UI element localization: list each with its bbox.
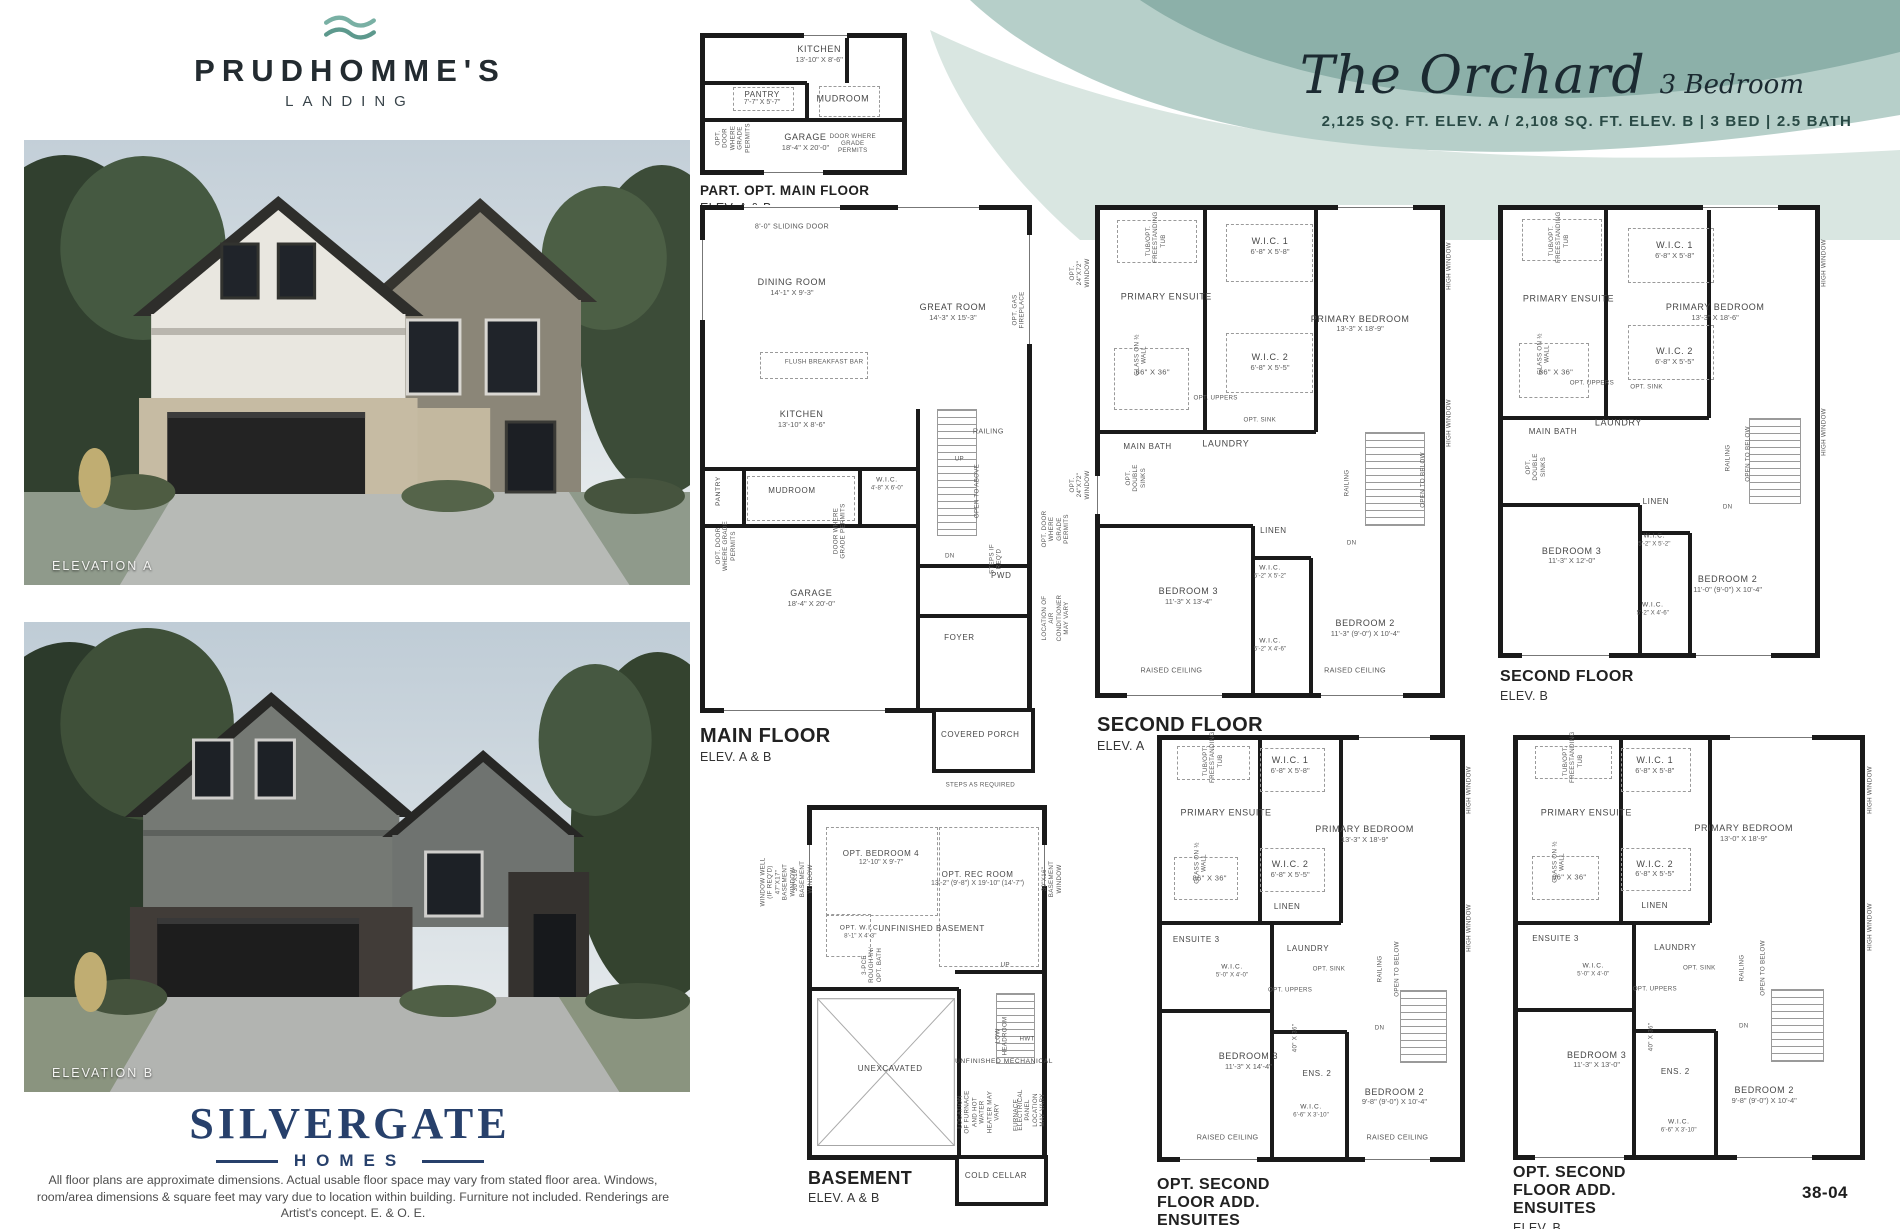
- plan-title: OPT. SECOND FLOOR ADD. ENSUITES: [1157, 1176, 1327, 1229]
- window-marker: [1737, 1155, 1812, 1160]
- plan-annotation: OPT. UPPERS: [1268, 986, 1312, 993]
- room-name: BEDROOM 3: [1159, 586, 1218, 597]
- plan-annotation: OPEN TO BELOW: [1744, 426, 1751, 482]
- room-dimensions: 5'-2" X 4'-6": [1637, 609, 1669, 616]
- room-label: GARAGE18'-4" X 20'-0": [782, 132, 829, 152]
- plan-annotation: UP: [1001, 962, 1010, 969]
- room-name: W.I.C. 2: [1271, 859, 1310, 870]
- plan-annotation: HIGH WINDOW: [1867, 903, 1874, 951]
- room-label: BEDROOM 311'-3" X 14'-4": [1219, 1051, 1278, 1071]
- room-dimensions: 18'-4" X 20'-0": [788, 599, 835, 608]
- interior-wall: [1518, 921, 1710, 925]
- interior-wall: [1253, 556, 1311, 560]
- plan-caption: BASEMENT ELEV. A & B: [808, 1168, 912, 1205]
- room-name: LAUNDRY: [1654, 943, 1696, 953]
- room-dimensions: 6'-8" X 5'-8": [1271, 766, 1310, 775]
- window-marker: [1703, 205, 1778, 210]
- room-dimensions: 13'-10" X 8'-6": [778, 420, 825, 429]
- plan-specs: 2,125 SQ. FT. ELEV. A / 2,108 SQ. FT. EL…: [1322, 113, 1852, 130]
- plan-annotation: OPT. SINK: [1683, 965, 1716, 972]
- room-name: UNFINISHED BASEMENT: [878, 924, 985, 934]
- interior-wall: [1270, 923, 1274, 1157]
- room-name: PRIMARY ENSUITE: [1180, 808, 1271, 819]
- plan-annotation: 86" X 36": [1136, 367, 1170, 376]
- room-label: PANTRY: [716, 476, 724, 506]
- room-dimensions: 11'-0" (9'-0") X 10'-4": [1693, 585, 1762, 594]
- room-name: LINEN: [1274, 902, 1301, 912]
- room-label: MAIN BATH: [1123, 442, 1171, 452]
- window-marker: [1522, 653, 1609, 658]
- room-dimensions: 18'-4" X 20'-0": [782, 143, 829, 152]
- interior-wall: [1518, 1008, 1634, 1012]
- plan-annotation: RAILING: [1738, 955, 1745, 982]
- room-dimensions: 11'-3" (9'-0") X 10'-4": [1331, 629, 1400, 638]
- room-label: W.I.C.4'-8" X 6'-0": [871, 476, 903, 491]
- room-name: ENSUITE 3: [1532, 934, 1579, 944]
- interior-wall: [955, 970, 1042, 974]
- interior-wall: [916, 409, 920, 708]
- plan-caption: MAIN FLOOR ELEV. A & B: [700, 725, 831, 764]
- room-name: LINEN: [1260, 526, 1287, 536]
- plan-annotation: OPT. SINK: [1313, 966, 1346, 973]
- room-label: W.I.C. 26'-8" X 5'-5": [1250, 352, 1289, 372]
- room-label: BEDROOM 311'-3" X 13'-4": [1159, 586, 1218, 606]
- window-marker: [1127, 693, 1222, 698]
- room-dimensions: 6'-6" X 3'-10": [1661, 1126, 1697, 1133]
- plan-annotation: OPEN TO ABOVE: [973, 464, 980, 518]
- room-name: MUDROOM: [817, 93, 870, 104]
- room-dimensions: 13'-3" X 18'-9": [1311, 324, 1410, 333]
- room-name: W.I.C.: [871, 476, 903, 484]
- room-dimensions: 11'-3" X 14'-4": [1219, 1062, 1278, 1071]
- plan-annotation: STEPS AS REQUIRED: [940, 781, 1020, 788]
- community-subtitle: LANDING: [95, 93, 605, 110]
- room-dimensions: 14'-3" X 15'-3": [920, 313, 987, 322]
- plan-annotation: LOCATION OF FURNACE AND HOT WATER HEATER…: [956, 1090, 1001, 1134]
- interior-wall: [705, 81, 807, 85]
- room-dimensions: 5'-2" X 4'-6": [1254, 645, 1286, 652]
- plan-annotation: RAISED CEILING: [1141, 667, 1203, 676]
- interior-wall: [858, 469, 862, 526]
- plan-title: SECOND FLOOR: [1097, 714, 1263, 736]
- room-label: LINEN: [1274, 902, 1301, 912]
- room-name: PRIMARY ENSUITE: [1541, 807, 1632, 818]
- room-dimensions: 12'-10" X 9'-7": [843, 859, 919, 867]
- plan-annotation: HIGH WINDOW: [1821, 239, 1828, 287]
- plan-annotation: ELECTRICAL PANEL LOCATION MAY VARY: [1017, 1088, 1047, 1132]
- plan-annotation: RAISED CEILING: [1197, 1134, 1259, 1143]
- room-name: COVERED PORCH: [941, 731, 1019, 741]
- plan-annotation: DOOR WHERE GRADE PERMITS: [827, 132, 879, 154]
- plan-annotation: RAISED CEILING: [1367, 1134, 1429, 1143]
- room-label: LAUNDRY: [1654, 943, 1696, 953]
- room-name: BEDROOM 3: [1219, 1051, 1278, 1062]
- room-label: ENS. 2: [1661, 1067, 1690, 1077]
- room-name: OPT. REC ROOM: [931, 870, 1024, 880]
- interior-wall: [1162, 921, 1341, 925]
- room-dimensions: 8'-1" X 4'-3": [840, 933, 881, 940]
- plan-subtitle: ELEV. A & B: [808, 1191, 912, 1205]
- plan-annotation: DN: [1739, 1023, 1749, 1030]
- plan-annotation: OPT. UPPERS: [1193, 395, 1237, 402]
- plan-subtitle: ELEV. A & B: [700, 750, 831, 764]
- plan-title: BASEMENT: [808, 1168, 912, 1188]
- room-dimensions: 13'-3" X 18'-6": [1666, 313, 1765, 322]
- room-label: LINEN: [1260, 526, 1287, 536]
- room-dimensions: 11'-3" X 13'-0": [1567, 1060, 1626, 1069]
- room-label: PRIMARY ENSUITE: [1523, 293, 1614, 304]
- room-name: W.I.C.: [1216, 964, 1248, 972]
- room-label: PRIMARY BEDROOM13'-3" X 18'-9": [1311, 314, 1410, 334]
- plan-annotation: HIGH WINDOW: [1465, 766, 1472, 814]
- interior-wall: [1309, 558, 1313, 693]
- room-name: BEDROOM 2: [1362, 1087, 1427, 1098]
- elevation-b-label: ELEVATION B: [52, 1066, 154, 1080]
- plan-annotation: OPEN TO BELOW: [1419, 453, 1426, 509]
- room-name: W.I.C.: [1638, 532, 1670, 540]
- plan-annotation: 30"X16" BASEMENT WINDOW: [1041, 855, 1063, 903]
- room-label: ENS. 2: [1302, 1069, 1331, 1079]
- page-number: 38-04: [1802, 1183, 1848, 1203]
- room-label: W.I.C.5'-2" X 4'-6": [1637, 601, 1669, 616]
- room-label: MUDROOM: [768, 487, 815, 497]
- interior-wall: [1632, 923, 1636, 1155]
- room-name: LAUNDRY: [1287, 944, 1329, 954]
- window-marker: [898, 205, 979, 210]
- room-dimensions: 6'-8" X 5'-5": [1635, 870, 1674, 879]
- plan-annotation: TUB/OPT. FREESTANDING TUB: [1562, 739, 1584, 783]
- room-name: W.I.C. 2: [1635, 859, 1674, 870]
- plan-type-label: 3 Bedroom: [1660, 70, 1804, 100]
- room-label: W.I.C. 26'-8" X 5'-5": [1271, 859, 1310, 879]
- disclaimer-text: All floor plans are approximate dimensio…: [20, 1172, 686, 1222]
- stairs: [1771, 989, 1824, 1062]
- room-name: LAUNDRY: [1202, 439, 1249, 450]
- window-marker: [1338, 205, 1413, 210]
- interior-wall: [805, 83, 809, 120]
- plan-annotation: DN: [945, 552, 955, 559]
- room-dimensions: 13'-2" (9'-8") X 19'-10" (14'-7"): [931, 880, 1024, 888]
- room-dimensions: 6'-8" X 5'-5": [1250, 363, 1289, 372]
- room-label: W.I.C. 26'-8" X 5'-5": [1635, 859, 1674, 879]
- plan-annotation: LOW HEADROOM: [994, 1016, 1009, 1056]
- room-name: PRIMARY BEDROOM: [1315, 824, 1414, 835]
- plan-annotation: HIGH WINDOW: [1867, 766, 1874, 814]
- room-label: PRIMARY BEDROOM13'-0" X 18'-9": [1694, 823, 1793, 843]
- room-label: W.I.C. 16'-8" X 5'-8": [1635, 755, 1674, 775]
- window-marker: [744, 205, 841, 210]
- room-dimensions: 4'-8" X 6'-0": [871, 484, 903, 491]
- room-name: LINEN: [1642, 901, 1669, 911]
- room-name: GARAGE: [782, 132, 829, 143]
- room-label: PRIMARY BEDROOM13'-3" X 18'-9": [1315, 824, 1414, 844]
- page-title: The Orchard: [1300, 46, 1646, 106]
- plan-annotation: OPT. DOOR WHERE GRADE PERMITS: [1041, 507, 1071, 551]
- floorplan-drawing: DINING ROOM14'-1" X 9'-3"GREAT ROOM14'-3…: [700, 205, 1032, 713]
- room-dimensions: 6'-8" X 5'-8": [1655, 251, 1694, 260]
- room-name: LAUNDRY: [1595, 417, 1642, 428]
- room-name: COLD CELLAR: [965, 1171, 1027, 1181]
- rule-right: [422, 1160, 484, 1163]
- interior-wall: [918, 564, 1027, 568]
- room-name: UNEXCAVATED: [858, 1064, 923, 1074]
- plan-annotation: HWT: [1020, 1036, 1035, 1043]
- builder-subtitle: HOMES: [294, 1151, 406, 1171]
- plan-annotation: HIGH WINDOW: [1465, 904, 1472, 952]
- room-label: PANTRY7'-7" X 5'-7": [744, 90, 780, 108]
- room-label: W.I.C.5'-2" X 5'-2": [1638, 532, 1670, 547]
- plan-annotation: OPT. GAS FIREPLACE: [1012, 287, 1027, 333]
- room-dimensions: 13'-3" X 18'-9": [1315, 835, 1414, 844]
- window-marker: [1180, 1157, 1257, 1162]
- room-name: W.I.C. 1: [1635, 755, 1674, 766]
- room-label: W.I.C.6'-6" X 3'-10": [1661, 1118, 1697, 1133]
- room-dimensions: 5'-0" X 4'-0": [1216, 972, 1248, 979]
- room-label: DINING ROOM14'-1" X 9'-3": [758, 277, 827, 297]
- room-dimensions: 11'-3" X 12'-0": [1542, 556, 1601, 565]
- room-name: W.I.C. 1: [1655, 240, 1694, 251]
- room-label: FOYER: [944, 633, 975, 643]
- room-label: LINEN: [1643, 498, 1670, 508]
- plan-annotation: 3-PCE ROUGH-IN/ OPT. BATH: [861, 943, 883, 987]
- plan-annotation: UP: [955, 455, 964, 462]
- window-marker: [724, 708, 885, 713]
- room-name: W.I.C.: [1577, 963, 1609, 971]
- interior-wall: [705, 467, 918, 471]
- interior-wall: [1162, 1009, 1272, 1013]
- room-label: BEDROOM 311'-3" X 13'-0": [1567, 1050, 1626, 1070]
- interior-wall: [1251, 526, 1255, 693]
- plan-annotation: 86" X 36": [1539, 367, 1573, 376]
- interior-wall: [1688, 533, 1692, 653]
- room-name: BEDROOM 2: [1331, 618, 1400, 629]
- stairs: [1365, 432, 1425, 526]
- room-dimensions: 9'-8" (9'-0") X 10'-4": [1362, 1097, 1427, 1106]
- room-name: ENS. 2: [1661, 1067, 1690, 1077]
- room-label: PRIMARY ENSUITE: [1121, 292, 1212, 303]
- room-label: KITCHEN13'-10" X 8'-6": [778, 409, 825, 429]
- room-label: MUDROOM: [817, 93, 870, 104]
- room-name: ENS. 2: [1302, 1069, 1331, 1079]
- room-label: PRIMARY ENSUITE: [1180, 808, 1271, 819]
- elevation-a-label: ELEVATION A: [52, 559, 153, 573]
- interior-wall: [1503, 503, 1640, 507]
- room-dimensions: 6'-8" X 5'-5": [1655, 357, 1694, 366]
- room-name: GREAT ROOM: [920, 302, 987, 313]
- room-name: W.I.C.: [1637, 601, 1669, 609]
- window-marker: [1027, 235, 1032, 345]
- plan-annotation: FLUSH BREAKFAST BAR: [785, 358, 863, 365]
- closet-dashed-area: [826, 827, 938, 915]
- room-name: W.I.C.: [1661, 1118, 1697, 1126]
- elevation-a-image: [24, 140, 690, 585]
- plan-annotation: STEPS IF REQ'D: [989, 542, 1004, 576]
- room-name: W.I.C. 1: [1271, 755, 1310, 766]
- room-name: OPT. BEDROOM 4: [843, 849, 919, 859]
- room-label: GARAGE18'-4" X 20'-0": [788, 589, 835, 609]
- plan-annotation: RAILING: [1724, 445, 1731, 472]
- plan-annotation: WINDOW WELL (IF REQ'D) 47"X17" BASEMENT …: [759, 856, 796, 908]
- plan-annotation: OPEN TO BELOW: [1759, 940, 1766, 996]
- room-label: LAUNDRY: [1287, 944, 1329, 954]
- room-dimensions: 14'-1" X 9'-3": [758, 288, 827, 297]
- plan-annotation: OPT. SINK: [1243, 416, 1276, 423]
- room-dimensions: 6'-8" X 5'-5": [1271, 870, 1310, 879]
- room-dimensions: 5'-0" X 4'-0": [1577, 971, 1609, 978]
- room-label: PRIMARY BEDROOM13'-3" X 18'-6": [1666, 302, 1765, 322]
- plan-caption: SECOND FLOOR ELEV. B: [1500, 668, 1634, 703]
- room-label: BEDROOM 29'-8" (9'-0") X 10'-4": [1362, 1087, 1427, 1107]
- window-marker: [804, 33, 847, 38]
- interior-wall: [812, 987, 959, 991]
- plan-annotation: RAILING: [1376, 956, 1383, 983]
- interior-wall: [845, 38, 849, 83]
- plan-caption: OPT. SECOND FLOOR ADD. ENSUITES ELEV. A: [1157, 1176, 1327, 1229]
- plan-annotation: TUB/OPT. FREESTANDING TUB: [1548, 219, 1570, 263]
- room-name: PANTRY: [744, 90, 780, 100]
- window-marker: [1730, 735, 1812, 740]
- plan-annotation: OPT. SINK: [1630, 383, 1663, 390]
- community-name: PRUDHOMME'S: [95, 53, 605, 89]
- plan-annotation: GLASS ON ½ WALL: [1552, 834, 1567, 890]
- builder-logo: SILVERGATE HOMES: [95, 1098, 605, 1171]
- interior-wall: [1604, 210, 1608, 418]
- room-label: PRIMARY ENSUITE: [1541, 807, 1632, 818]
- room-name: OPT. W.I.C.: [840, 925, 881, 933]
- interior-wall: [1100, 430, 1316, 434]
- room-label: W.I.C. 26'-8" X 5'-5": [1655, 346, 1694, 366]
- room-dimensions: 6'-8" X 5'-8": [1635, 766, 1674, 775]
- floorplan-drawing: PRIMARY ENSUITEW.I.C. 16'-8" X 5'-8"W.I.…: [1513, 735, 1865, 1160]
- plan-extension: [932, 708, 1035, 773]
- interior-wall: [1100, 524, 1253, 528]
- rule-left: [216, 1160, 278, 1163]
- room-name: BEDROOM 3: [1542, 546, 1601, 557]
- plan-annotation: TUB/OPT. FREESTANDING TUB: [1145, 219, 1167, 263]
- plan-second-floor-b: PRIMARY ENSUITEW.I.C. 16'-8" X 5'-8"W.I.…: [1498, 205, 1820, 658]
- room-dimensions: 5'-2" X 5'-2": [1254, 572, 1286, 579]
- room-name: PRIMARY BEDROOM: [1666, 302, 1765, 313]
- stairs: [1400, 990, 1447, 1063]
- room-dimensions: 9'-8" (9'-0") X 10'-4": [1732, 1096, 1797, 1105]
- window-marker: [1696, 653, 1771, 658]
- interior-wall: [1345, 1032, 1349, 1157]
- interior-wall: [742, 469, 746, 526]
- room-label: BEDROOM 311'-3" X 12'-0": [1542, 546, 1601, 566]
- room-label: KITCHEN13'-10" X 8'-6": [796, 44, 843, 64]
- room-name: BEDROOM 3: [1567, 1050, 1626, 1061]
- room-name: KITCHEN: [796, 44, 843, 55]
- room-dimensions: 11'-3" X 13'-4": [1159, 597, 1218, 606]
- room-dimensions: 13'-10" X 8'-6": [796, 55, 843, 64]
- room-label: OPT. W.I.C.8'-1" X 4'-3": [840, 925, 881, 940]
- plan-annotation: LOCATION OF AIR CONDITIONER MAY VARY: [1041, 593, 1071, 643]
- plan-second-floor-a: PRIMARY ENSUITEW.I.C. 16'-8" X 5'-8"W.I.…: [1095, 205, 1445, 698]
- plan-annotation: 86" X 36": [1193, 873, 1227, 882]
- brochure-page: The Orchard 3 Bedroom 2,125 SQ. FT. ELEV…: [0, 0, 1900, 1229]
- plan-annotation: HIGH WINDOW: [1445, 242, 1452, 290]
- room-name: FOYER: [944, 633, 975, 643]
- interior-wall: [1714, 1031, 1718, 1156]
- window-marker: [1321, 693, 1403, 698]
- plan-subtitle: ELEV. B: [1500, 689, 1634, 703]
- room-name: UNFINISHED MECHANICAL: [955, 1058, 1053, 1066]
- room-name: W.I.C.: [1254, 637, 1286, 645]
- window-marker: [1359, 735, 1431, 740]
- plan-annotation: DN: [1347, 540, 1357, 547]
- floorplan-drawing: OPT. BEDROOM 412'-10" X 9'-7"OPT. REC RO…: [807, 805, 1047, 1160]
- room-label: ENSUITE 3: [1173, 935, 1220, 945]
- plan-subtitle: ELEV. B: [1513, 1221, 1683, 1229]
- floorplan-drawing: PRIMARY ENSUITEW.I.C. 16'-8" X 5'-8"W.I.…: [1095, 205, 1445, 698]
- stairs: [937, 409, 978, 536]
- room-name: PRIMARY ENSUITE: [1121, 292, 1212, 303]
- room-label: COLD CELLAR: [965, 1171, 1027, 1181]
- plan-annotation: OPT. UPPERS: [1570, 379, 1614, 386]
- plan-annotation: RAILING: [973, 427, 1004, 436]
- plan-title: SECOND FLOOR: [1500, 668, 1634, 686]
- room-label: MAIN BATH: [1529, 427, 1577, 437]
- room-name: ENSUITE 3: [1173, 935, 1220, 945]
- room-label: UNFINISHED MECHANICAL: [955, 1058, 1053, 1066]
- room-name: DINING ROOM: [758, 277, 827, 288]
- plan-title: MAIN FLOOR: [700, 725, 831, 747]
- room-name: PRIMARY ENSUITE: [1523, 293, 1614, 304]
- room-label: LAUNDRY: [1202, 439, 1249, 450]
- room-label: W.I.C. 16'-8" X 5'-8": [1250, 236, 1289, 256]
- plan-caption: OPT. SECOND FLOOR ADD. ENSUITES ELEV. B: [1513, 1164, 1683, 1229]
- room-label: W.I.C.6'-6" X 3'-10": [1293, 1103, 1329, 1118]
- plan-title-block: The Orchard 3 Bedroom: [1300, 46, 1804, 106]
- room-name: W.I.C.: [1254, 565, 1286, 573]
- plan-part-opt-main-floor: KITCHEN13'-10" X 8'-6"PANTRY7'-7" X 5'-7…: [700, 33, 907, 175]
- plan-annotation: TUB/OPT. FREESTANDING TUB: [1202, 739, 1224, 783]
- room-label: W.I.C.5'-0" X 4'-0": [1216, 964, 1248, 979]
- window-marker: [1095, 476, 1100, 515]
- room-dimensions: 7'-7" X 5'-7": [744, 99, 780, 107]
- plan-annotation: OPT. DOUBLE SINKS: [1125, 459, 1147, 497]
- plan-annotation: DOOR WHERE GRADE PERMITS: [833, 500, 848, 562]
- room-label: W.I.C.5'-2" X 5'-2": [1254, 565, 1286, 580]
- room-label: W.I.C.5'-2" X 4'-6": [1254, 637, 1286, 652]
- room-dimensions: 13'-0" X 18'-9": [1694, 834, 1793, 843]
- room-label: COVERED PORCH: [941, 731, 1019, 741]
- room-name: W.I.C. 2: [1655, 346, 1694, 357]
- room-label: W.I.C. 16'-8" X 5'-8": [1655, 240, 1694, 260]
- stairs: [1749, 418, 1801, 504]
- interior-wall: [1272, 1030, 1347, 1034]
- plan-annotation: GLASS ON ½ WALL: [1193, 835, 1208, 891]
- window-marker: [1535, 1155, 1624, 1160]
- plan-main-floor: DINING ROOM14'-1" X 9'-3"GREAT ROOM14'-3…: [700, 205, 1032, 713]
- plan-opt-second-floor-b: PRIMARY ENSUITEW.I.C. 16'-8" X 5'-8"W.I.…: [1513, 735, 1865, 1160]
- builder-name: SILVERGATE: [95, 1098, 605, 1149]
- room-dimensions: 6'-8" X 5'-8": [1250, 247, 1289, 256]
- plan-annotation: 86" X 36": [1552, 872, 1586, 881]
- window-marker: [700, 240, 705, 320]
- elevation-a-rendering: ELEVATION A: [24, 140, 690, 585]
- room-label: OPT. BEDROOM 412'-10" X 9'-7": [843, 849, 919, 867]
- plan-annotation: OPT. DOUBLE SINKS: [1525, 448, 1547, 486]
- plan-basement: OPT. BEDROOM 412'-10" X 9'-7"OPT. REC RO…: [807, 805, 1047, 1160]
- plan-annotation: RAILING: [1343, 469, 1350, 496]
- room-dimensions: 5'-2" X 5'-2": [1638, 540, 1670, 547]
- plan-annotation: OPEN TO BELOW: [1394, 942, 1401, 998]
- plan-annotation: RAISED CEILING: [1324, 667, 1386, 676]
- room-label: GREAT ROOM14'-3" X 15'-3": [920, 302, 987, 322]
- room-name: GARAGE: [788, 589, 835, 600]
- closet-dashed-area: [939, 827, 1040, 967]
